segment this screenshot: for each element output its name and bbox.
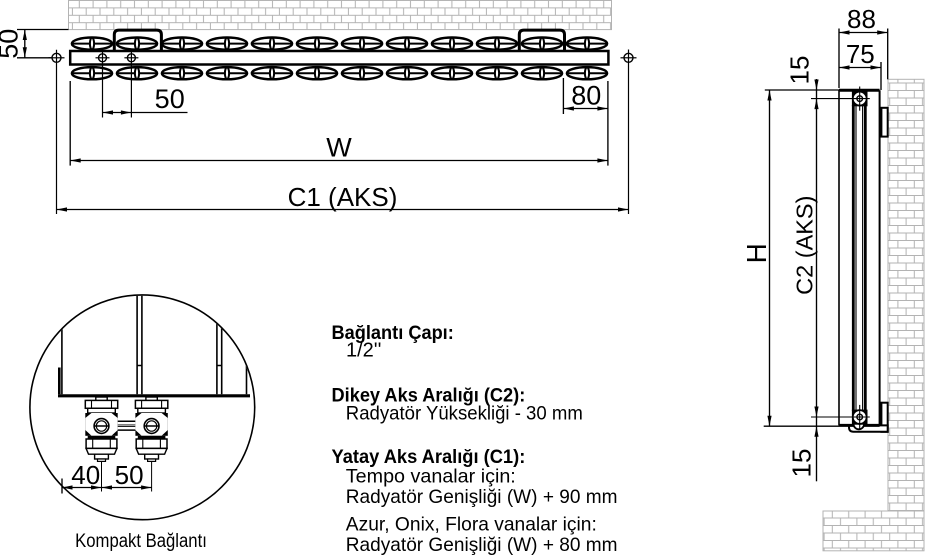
svg-text:Tempo vanalar için:: Tempo vanalar için: — [346, 465, 516, 487]
svg-text:1/2'': 1/2'' — [346, 340, 381, 362]
svg-text:Radyatör Yüksekliği - 30 mm: Radyatör Yüksekliği - 30 mm — [346, 403, 583, 425]
svg-text:Radyatör Genişliği (W) + 80 mm: Radyatör Genişliği (W) + 80 mm — [346, 534, 618, 556]
svg-text:Kompakt Bağlantı: Kompakt Bağlantı — [75, 531, 207, 552]
svg-text:C1 (AKS): C1 (AKS) — [288, 182, 398, 212]
svg-text:C2 (AKS): C2 (AKS) — [792, 196, 818, 295]
svg-text:50: 50 — [115, 460, 144, 490]
svg-text:40: 40 — [71, 460, 100, 490]
svg-text:H: H — [741, 243, 772, 263]
svg-text:Radyatör Genişliği (W) + 90 mm: Radyatör Genişliği (W) + 90 mm — [346, 486, 618, 508]
svg-text:75: 75 — [846, 39, 875, 69]
svg-text:50: 50 — [0, 29, 24, 59]
svg-text:W: W — [326, 133, 352, 163]
svg-text:88: 88 — [847, 4, 876, 34]
svg-text:15: 15 — [787, 449, 817, 478]
svg-text:80: 80 — [571, 80, 601, 110]
svg-text:15: 15 — [785, 56, 815, 85]
svg-text:Azur, Onix, Flora vanalar için: Azur, Onix, Flora vanalar için: — [346, 514, 597, 536]
svg-text:50: 50 — [155, 84, 185, 114]
